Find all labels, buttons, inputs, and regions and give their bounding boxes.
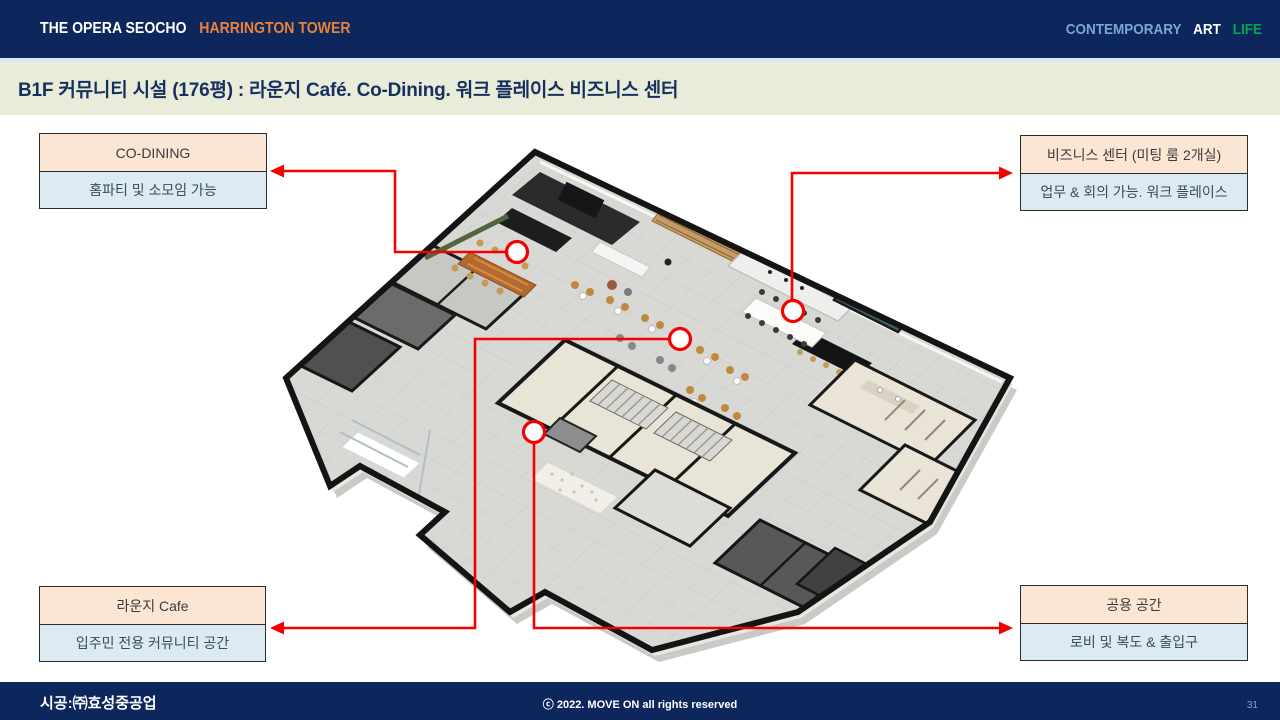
callout-co-dining-title: CO-DINING (40, 134, 266, 172)
callout-common-area: 공용 공간 로비 및 복도 & 출입구 (1020, 585, 1248, 661)
marker-lounge (670, 329, 691, 350)
callout-common-desc: 로비 및 복도 & 출입구 (1021, 624, 1247, 660)
callout-business-title: 비즈니스 센터 (미팅 룸 2개실) (1021, 136, 1247, 174)
callout-co-dining-desc: 홈파티 및 소모임 가능 (40, 172, 266, 208)
marker-common (524, 422, 545, 443)
callout-business-desc: 업무 & 회의 가능. 워크 플레이스 (1021, 174, 1247, 210)
callout-co-dining: CO-DINING 홈파티 및 소모임 가능 (39, 133, 267, 209)
connector-business (792, 173, 999, 300)
marker-co-dining (507, 242, 528, 263)
marker-business (783, 301, 804, 322)
callout-business-center: 비즈니스 센터 (미팅 룸 2개실) 업무 & 회의 가능. 워크 플레이스 (1020, 135, 1248, 211)
callout-lounge-desc: 입주민 전용 커뮤니티 공간 (40, 625, 265, 661)
callout-lounge-title: 라운지 Cafe (40, 587, 265, 625)
callout-lounge-cafe: 라운지 Cafe 입주민 전용 커뮤니티 공간 (39, 586, 266, 662)
callout-common-title: 공용 공간 (1021, 586, 1247, 624)
